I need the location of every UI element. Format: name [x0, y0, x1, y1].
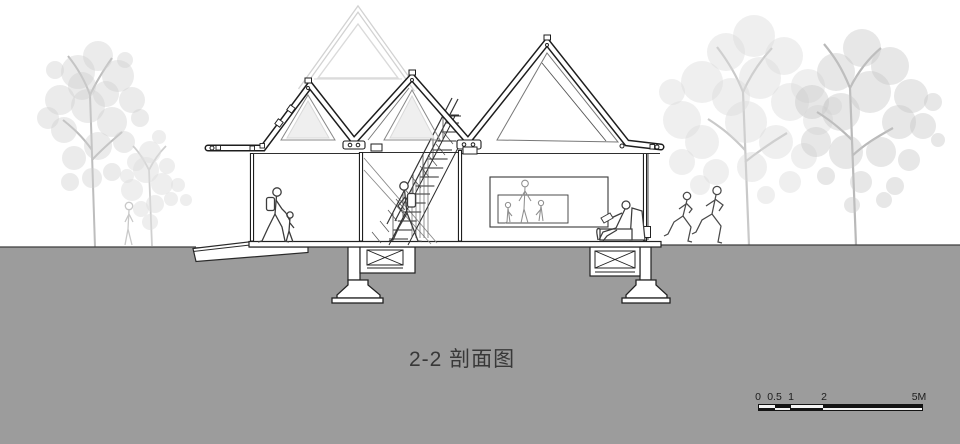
scale-segment [758, 408, 775, 411]
scale-segment [823, 405, 922, 408]
walker-with-child [258, 188, 294, 242]
drawing-title: 2-2 剖面图 [409, 343, 515, 373]
scale-segment [790, 408, 823, 411]
pedestrian-faint [125, 202, 133, 245]
scale-label-0-5: 0.5 [767, 391, 782, 403]
section-drawing-sheet: 2-2 剖面图 0 0.5 1 2 5M [0, 0, 960, 444]
scale-label-1: 1 [788, 391, 794, 403]
tree-right-dark [795, 29, 945, 245]
scale-segment [775, 405, 792, 408]
wall-top-beams [463, 147, 477, 154]
ceiling-lines [253, 153, 660, 154]
scale-bar-segments [758, 404, 923, 411]
stair-flight-behind [364, 158, 437, 244]
joggers [664, 186, 723, 243]
interior-window [490, 177, 608, 227]
scale-label-2: 2 [821, 391, 827, 403]
scale-label-5m: 5M [912, 391, 927, 403]
tree-left-large [37, 41, 149, 247]
scale-bar: 0 0.5 1 2 5M [758, 391, 928, 413]
background-roof-faint [300, 9, 416, 90]
architectural-section-drawing [0, 0, 960, 444]
scale-label-0: 0 [755, 391, 761, 403]
floor-slab [249, 242, 661, 248]
